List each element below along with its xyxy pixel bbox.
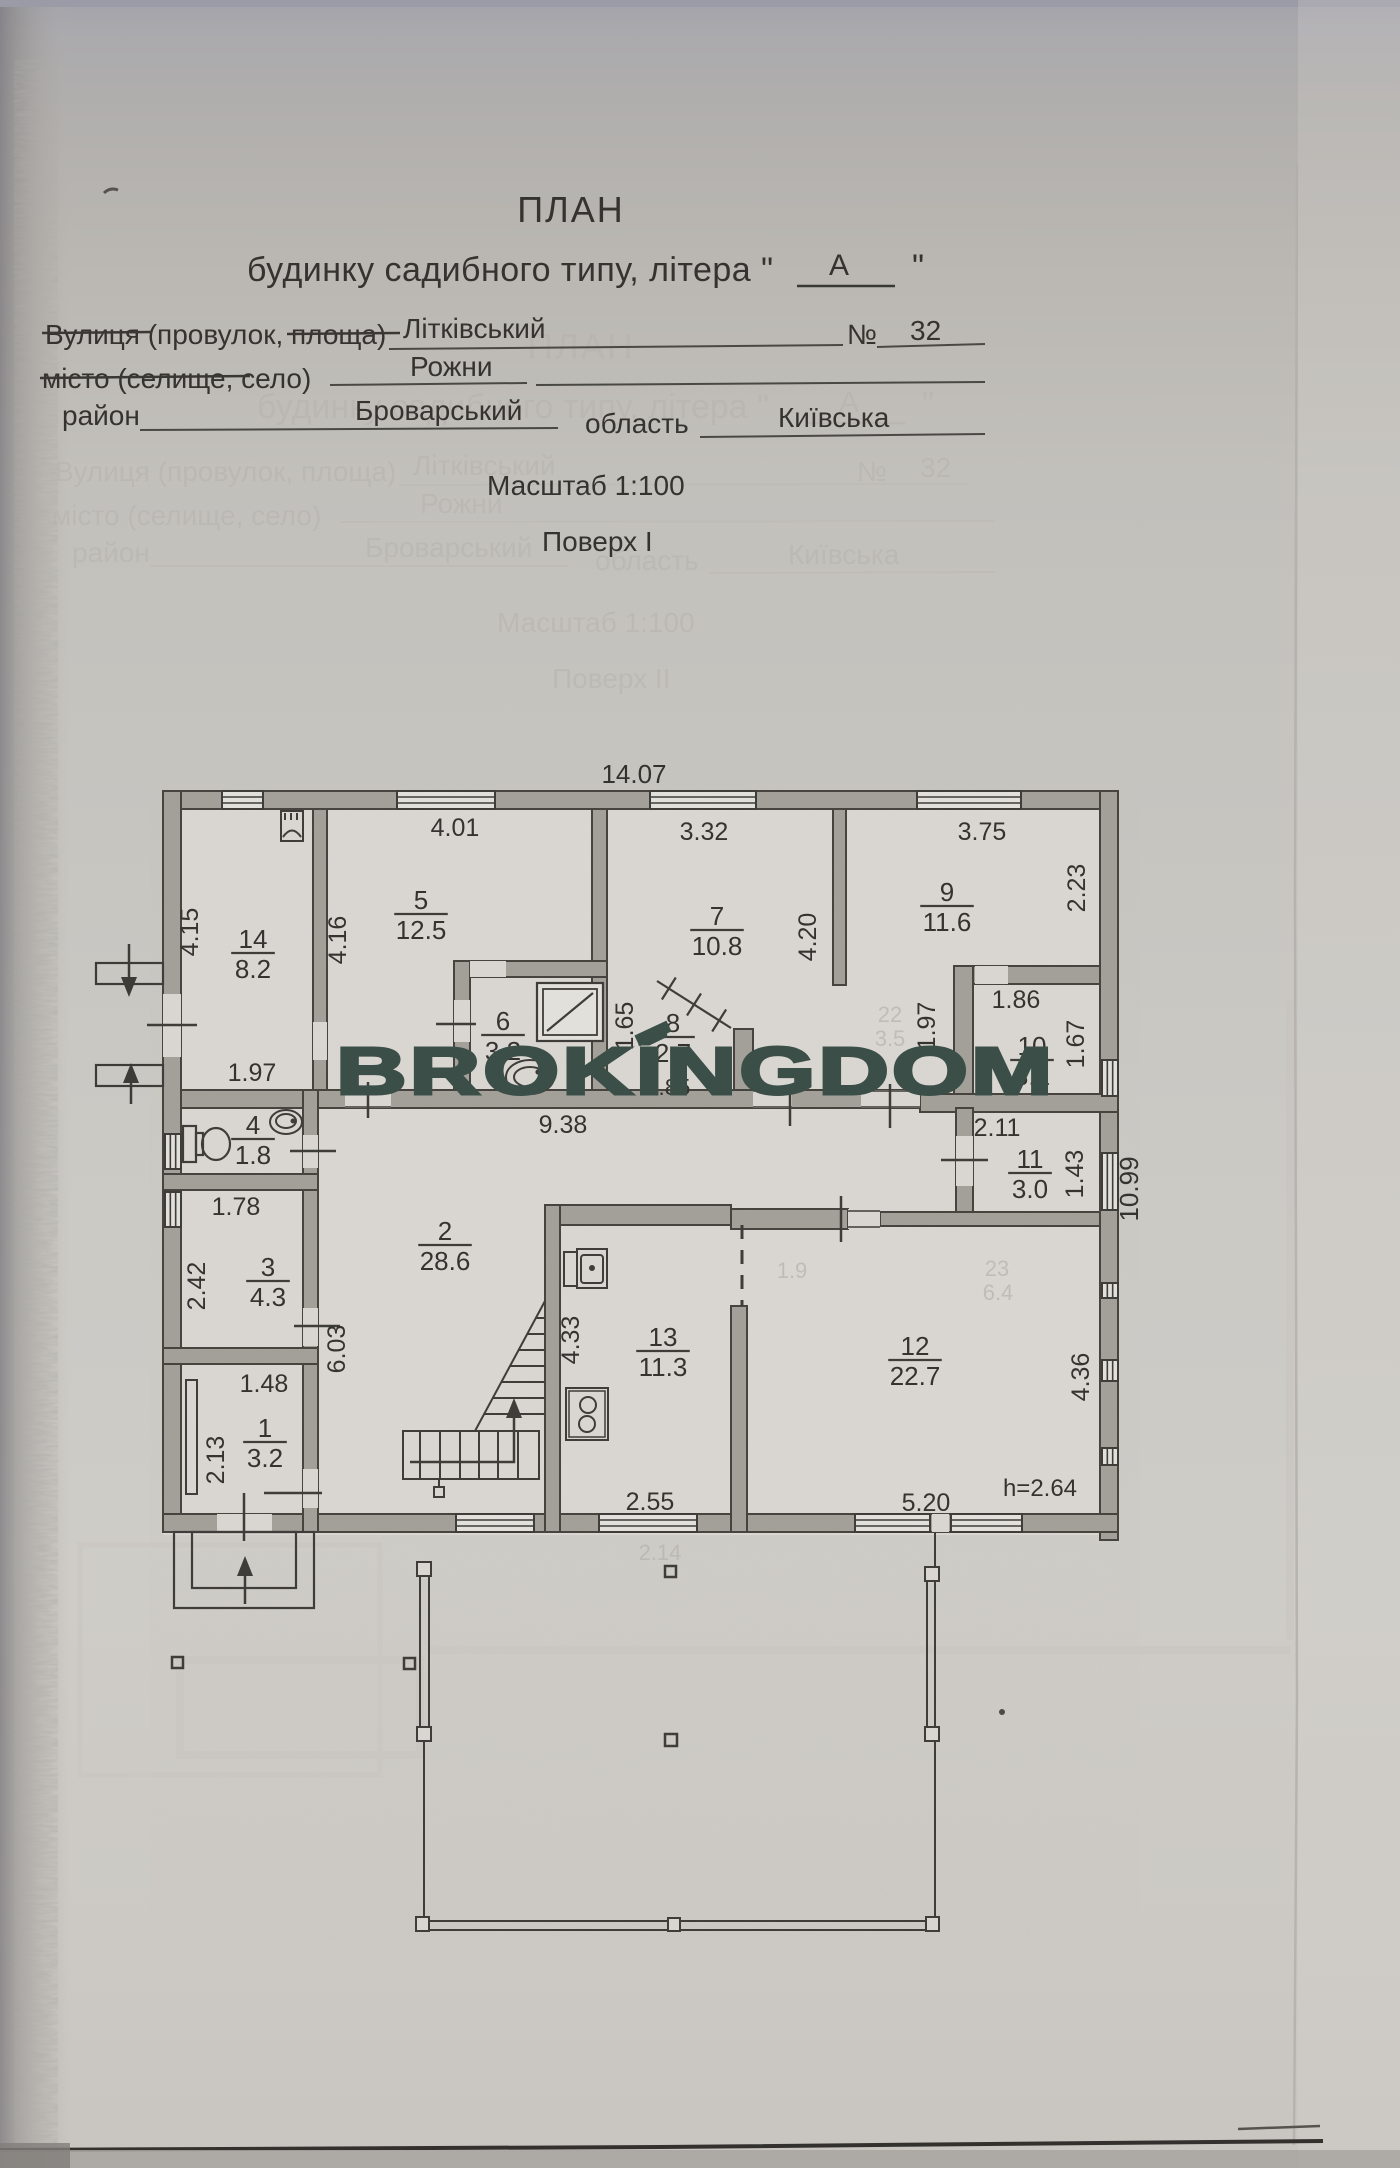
svg-text:32: 32 <box>920 452 951 483</box>
svg-text:Броварський: Броварський <box>355 395 522 426</box>
svg-text:Київська: Київська <box>788 539 900 570</box>
svg-text:район: район <box>72 537 150 568</box>
svg-text:Масштаб 1:100: Масштаб 1:100 <box>487 470 685 501</box>
svg-text:область: область <box>585 408 689 439</box>
svg-text:Київська: Київська <box>778 402 890 433</box>
svg-text:Броварський: Броварський <box>365 532 532 563</box>
svg-text:Літківський: Літківський <box>403 313 546 344</box>
svg-text:район: район <box>62 400 140 431</box>
svg-text:Рожни: Рожни <box>410 351 493 382</box>
svg-text:ПЛАН: ПЛАН <box>517 189 625 230</box>
svg-text:": " <box>912 248 924 286</box>
svg-text:Масштаб 1:100: Масштаб 1:100 <box>497 607 695 638</box>
svg-text:": " <box>922 385 934 423</box>
svg-text:32: 32 <box>910 315 941 346</box>
svg-text:№: № <box>847 319 877 350</box>
svg-text:місто (селище, село): місто (селище, село) <box>52 500 321 531</box>
svg-text:А: А <box>829 249 849 282</box>
svg-text:BROKÍNGDOM: BROKÍNGDOM <box>336 1033 1055 1108</box>
svg-text:Вулиця (провулок, площа): Вулиця (провулок, площа) <box>55 456 396 487</box>
svg-text:Поверх I: Поверх I <box>542 526 653 557</box>
svg-text:Поверх II: Поверх II <box>552 663 670 694</box>
svg-text:будинку садибного типу, літера: будинку садибного типу, літера " <box>247 251 774 289</box>
svg-text:№: № <box>857 456 887 487</box>
